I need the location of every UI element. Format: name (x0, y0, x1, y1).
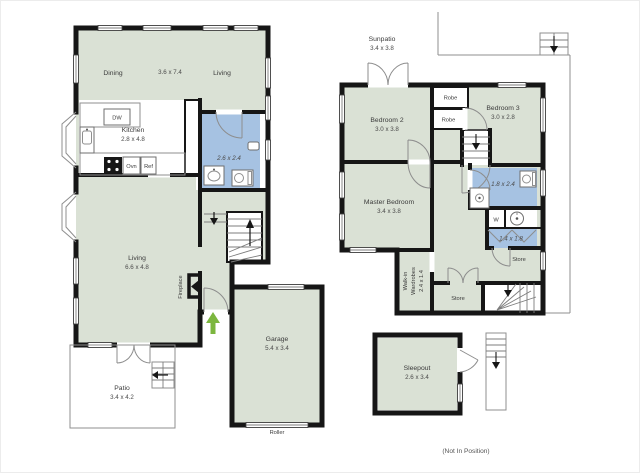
door-gap (468, 170, 473, 190)
door-gap (463, 108, 468, 130)
sink-icon (80, 127, 94, 153)
room-dims: 3.4 x 4.2 (110, 394, 134, 401)
room-label: Garage (266, 336, 289, 343)
floorplan-image: Dining 3.6 x 7.4 Living Kitchen 2.8 x 4.… (0, 0, 640, 473)
store-label: Store (451, 296, 465, 302)
robe-label: Robe (442, 118, 456, 124)
room-label: Master Bedroom (364, 199, 415, 206)
room-dims: 1.8 x 2.4 (491, 181, 515, 188)
door-gap (458, 348, 463, 372)
room-dims: 3.4 x 3.8 (370, 45, 394, 52)
room-label: Living (128, 255, 146, 262)
room-dims: 5.4 x 3.4 (265, 345, 289, 352)
room-dims: 2.6 x 3.4 (405, 374, 429, 381)
door-gap (216, 110, 242, 115)
room-dims: 3.6 x 7.4 (158, 69, 182, 76)
appliance-label: Ovn (126, 164, 136, 170)
stairs-ground (227, 212, 262, 262)
room-dims: 2.8 x 4.8 (121, 136, 145, 143)
room-label: Dining (103, 70, 122, 77)
basin-icon (248, 142, 259, 150)
stove-icon (104, 157, 122, 174)
walkin-dims: 2.4 x 1.4 (419, 270, 425, 292)
floorplan-canvas: Dining 3.6 x 7.4 Living Kitchen 2.8 x 4.… (0, 0, 640, 473)
room-label: Bedroom 2 (370, 117, 403, 124)
door-gap (430, 252, 435, 272)
position-note: (Not In Position) (442, 448, 489, 455)
door-gap (408, 160, 430, 165)
room-label: Kitchen (122, 127, 145, 134)
appliance-label: DW (112, 116, 122, 122)
room-label: Patio (114, 385, 130, 392)
walkin-label: Wardrobes (411, 267, 417, 295)
robe-label: Robe (444, 96, 458, 102)
room-label: Bedroom 3 (486, 105, 519, 112)
walkin-label: Walk-in (403, 272, 409, 291)
room-dims: 3.0 x 2.8 (491, 114, 515, 121)
appliance-label: Ref (144, 164, 153, 170)
shower-icon (470, 188, 489, 208)
exterior-notch (232, 262, 268, 287)
room-dims: 3.4 x 3.8 (377, 208, 401, 215)
room-dims: 3.0 x 3.8 (375, 126, 399, 133)
room-garage (232, 287, 322, 425)
vanity-sink-icon (204, 166, 224, 185)
roller-door (246, 423, 308, 428)
door-gap (204, 310, 228, 315)
toilet-icon (232, 170, 253, 186)
fireplace-label: Fireplace (178, 275, 184, 298)
room-label: Sunpatio (369, 36, 396, 43)
store-label: Store (512, 257, 526, 263)
washer-label: W (493, 218, 499, 224)
toilet-icon (520, 171, 536, 187)
room-dims: 6.6 x 4.8 (125, 264, 149, 271)
room-label: Living (213, 70, 231, 77)
roller-label: Roller (270, 430, 285, 436)
room-dims: 2.6 x 2.4 (216, 155, 241, 162)
room-label: Sleepout (404, 365, 431, 372)
room-dims: 1.4 x 1.8 (499, 236, 523, 243)
